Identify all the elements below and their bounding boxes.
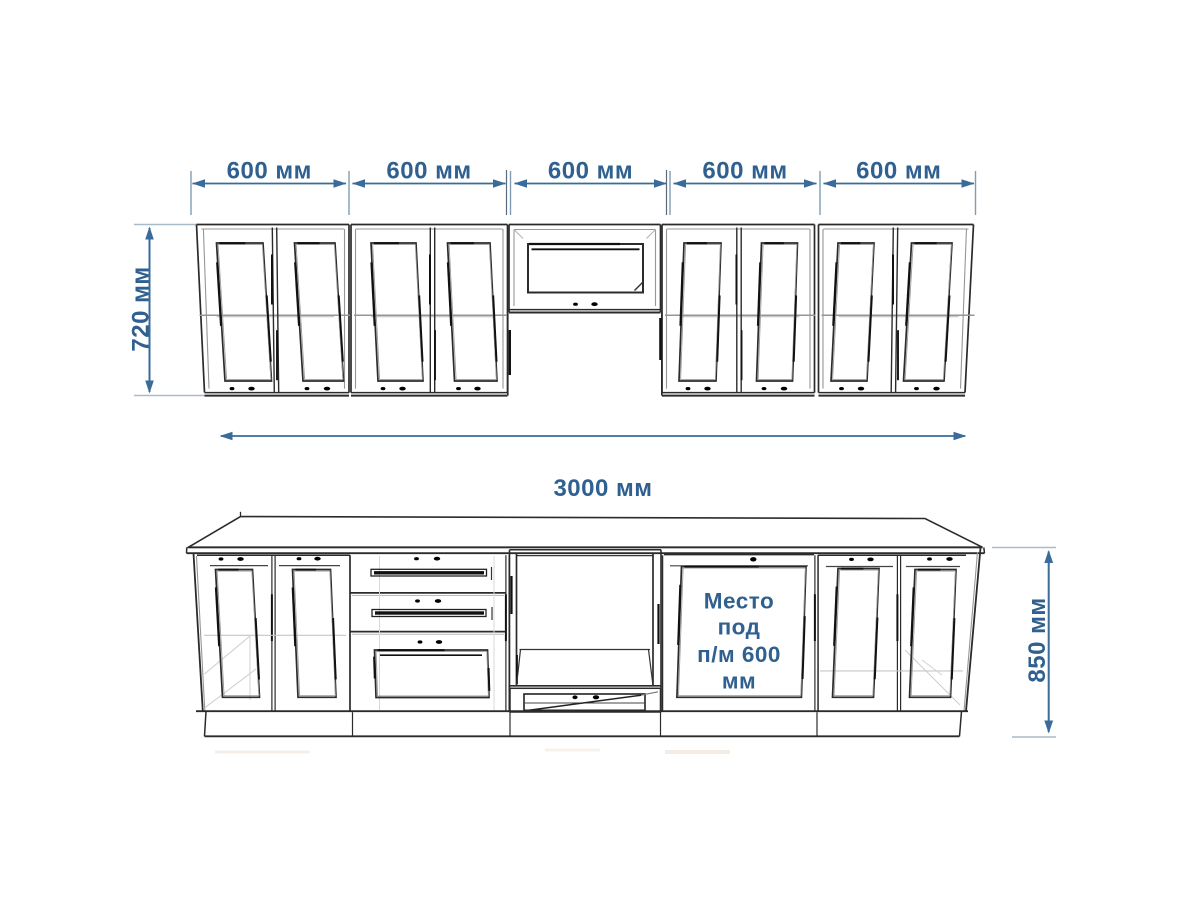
svg-text:850 мм: 850 мм [1024,597,1051,682]
svg-text:720 мм: 720 мм [128,266,155,351]
svg-text:Место: Место [704,589,774,614]
svg-text:600 мм: 600 мм [386,158,471,185]
svg-text:600 мм: 600 мм [227,158,312,185]
svg-text:мм: мм [722,669,756,694]
svg-text:под: под [718,615,761,640]
svg-text:600 мм: 600 мм [856,158,941,185]
svg-text:п/м 600: п/м 600 [697,642,781,667]
svg-text:600 мм: 600 мм [702,158,787,185]
svg-text:3000 мм: 3000 мм [553,475,652,502]
svg-text:600 мм: 600 мм [548,158,633,185]
